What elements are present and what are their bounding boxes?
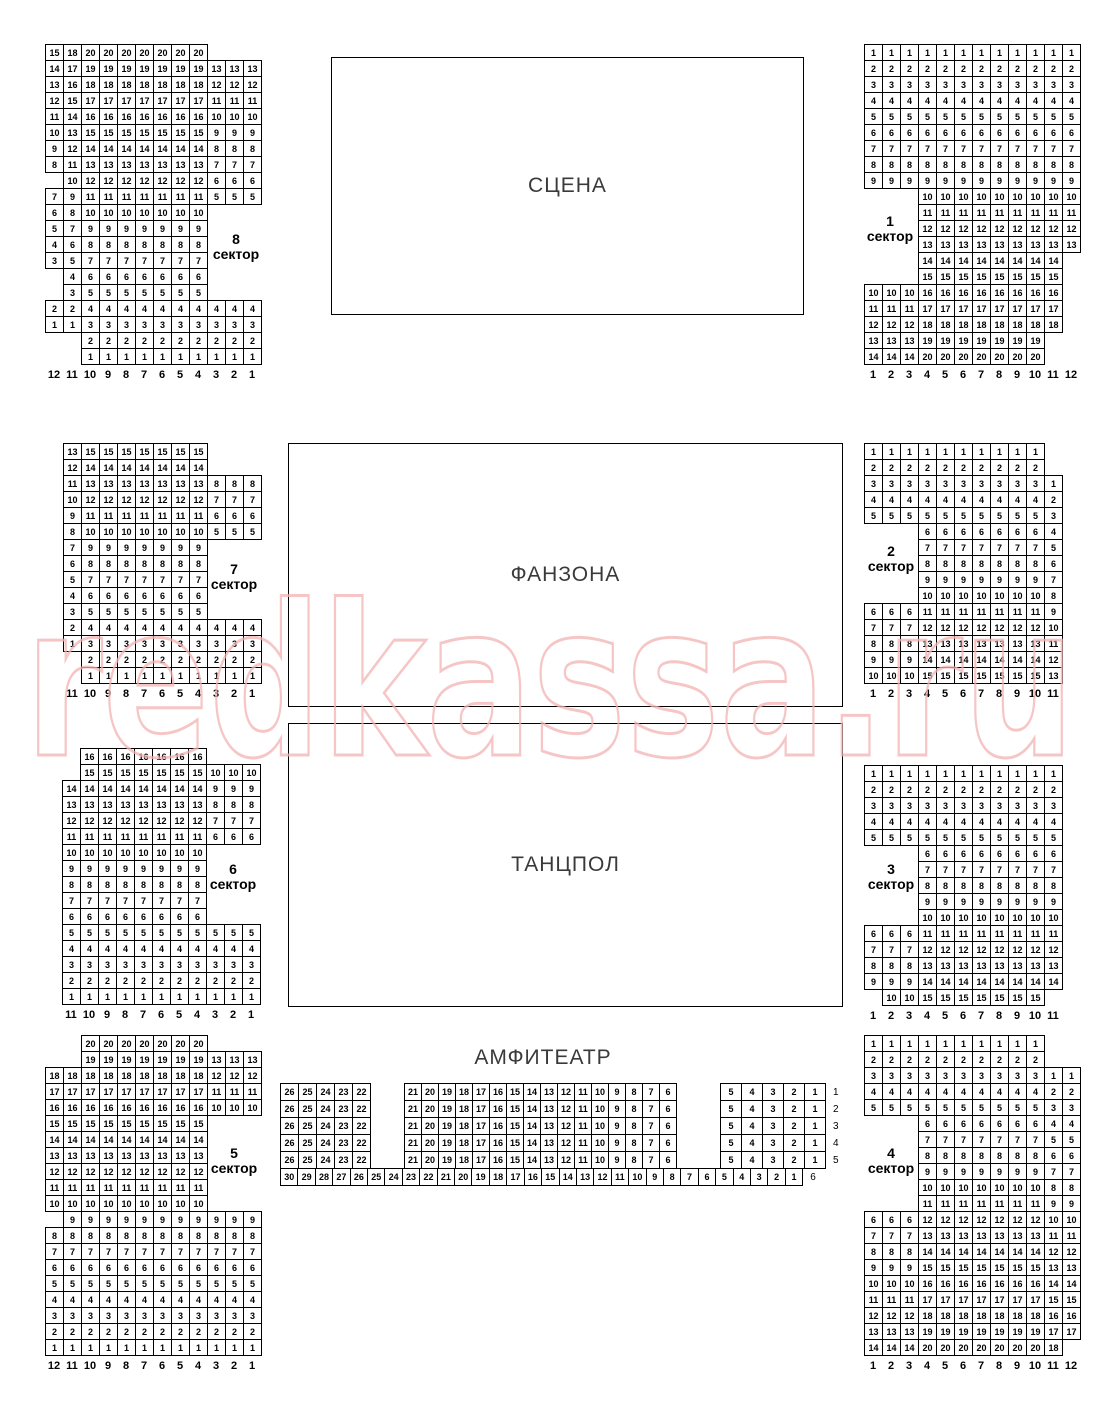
seat-cell[interactable]: 18 [918, 1307, 937, 1324]
seat-cell[interactable]: 1 [1008, 1035, 1027, 1052]
seat-cell[interactable]: 6 [659, 1100, 677, 1118]
seat-cell[interactable]: 7 [1044, 861, 1063, 878]
seat-cell[interactable]: 14 [954, 973, 973, 990]
seat-cell[interactable]: 2 [243, 1323, 262, 1340]
seat-cell[interactable]: 19 [99, 1051, 118, 1068]
seat-cell[interactable]: 5 [936, 507, 955, 524]
seat-cell[interactable]: 7 [864, 941, 883, 958]
seat-cell[interactable]: 10 [900, 1275, 919, 1292]
seat-cell[interactable]: 19 [117, 60, 136, 77]
seat-cell[interactable]: 12 [972, 220, 991, 237]
seat-cell[interactable]: 4 [135, 619, 154, 636]
seat-cell[interactable]: 20 [99, 1035, 118, 1052]
seat-cell[interactable]: 25 [298, 1151, 317, 1169]
seat-cell[interactable]: 5 [63, 252, 82, 269]
seat-cell[interactable]: 14 [882, 348, 901, 365]
seat-cell[interactable]: 1 [243, 348, 262, 365]
seat-cell[interactable]: 2 [972, 1051, 991, 1068]
seat-cell[interactable]: 20 [954, 1339, 973, 1356]
seat-cell[interactable]: 1 [117, 1339, 136, 1356]
seat-cell[interactable]: 9 [81, 220, 100, 237]
seat-cell[interactable]: 1 [954, 443, 973, 460]
seat-cell[interactable]: 6 [189, 1259, 208, 1276]
seat-cell[interactable]: 15 [990, 989, 1009, 1006]
seat-cell[interactable]: 6 [864, 1211, 883, 1228]
seat-cell[interactable]: 8 [864, 1243, 883, 1260]
seat-cell[interactable]: 1 [1044, 44, 1063, 61]
seat-cell[interactable]: 2 [882, 1051, 901, 1068]
seat-cell[interactable]: 10 [990, 1179, 1009, 1196]
seat-cell[interactable]: 13 [882, 332, 901, 349]
seat-cell[interactable]: 8 [135, 555, 154, 572]
seat-cell[interactable]: 3 [117, 1307, 136, 1324]
seat-cell[interactable]: 11 [81, 507, 100, 524]
seat-cell[interactable]: 4 [81, 619, 100, 636]
seat-cell[interactable]: 10 [954, 909, 973, 926]
seat-cell[interactable]: 7 [117, 252, 136, 269]
seat-cell[interactable]: 6 [936, 845, 955, 862]
seat-cell[interactable]: 7 [642, 1134, 660, 1152]
seat-cell[interactable]: 10 [189, 1195, 208, 1212]
seat-cell[interactable]: 5 [864, 108, 883, 125]
seat-cell[interactable]: 2 [81, 651, 100, 668]
seat-cell[interactable]: 24 [316, 1151, 335, 1169]
seat-cell[interactable]: 16 [954, 284, 973, 301]
seat-cell[interactable]: 2 [900, 459, 919, 476]
seat-cell[interactable]: 1 [63, 635, 82, 652]
seat-cell[interactable]: 13 [225, 1051, 244, 1068]
seat-cell[interactable]: 3 [171, 316, 190, 333]
seat-cell[interactable]: 14 [882, 1339, 901, 1356]
seat-cell[interactable]: 13 [540, 1117, 558, 1135]
seat-cell[interactable]: 2 [153, 651, 172, 668]
seat-cell[interactable]: 2 [189, 332, 208, 349]
seat-cell[interactable]: 11 [972, 1195, 991, 1212]
seat-cell[interactable]: 5 [954, 108, 973, 125]
seat-cell[interactable]: 14 [45, 1131, 64, 1148]
seat-cell[interactable]: 4 [741, 1117, 763, 1135]
seat-cell[interactable]: 7 [81, 1243, 100, 1260]
seat-cell[interactable]: 14 [990, 252, 1009, 269]
seat-cell[interactable]: 7 [1044, 1163, 1063, 1180]
seat-cell[interactable]: 15 [990, 1259, 1009, 1276]
seat-cell[interactable]: 14 [188, 780, 207, 797]
seat-cell[interactable]: 10 [954, 587, 973, 604]
seat-cell[interactable]: 11 [990, 204, 1009, 221]
seat-cell[interactable]: 14 [1026, 252, 1045, 269]
seat-cell[interactable]: 5 [170, 924, 189, 941]
seat-cell[interactable]: 9 [63, 188, 82, 205]
seat-cell[interactable]: 12 [1026, 220, 1045, 237]
seat-cell[interactable]: 8 [972, 555, 991, 572]
seat-cell[interactable]: 7 [225, 491, 244, 508]
seat-cell[interactable]: 7 [936, 539, 955, 556]
seat-cell[interactable]: 9 [63, 1211, 82, 1228]
seat-cell[interactable]: 8 [63, 523, 82, 540]
seat-cell[interactable]: 7 [1008, 140, 1027, 157]
seat-cell[interactable]: 12 [62, 812, 81, 829]
seat-cell[interactable]: 6 [882, 1211, 901, 1228]
seat-cell[interactable]: 7 [864, 140, 883, 157]
seat-cell[interactable]: 2 [767, 1168, 785, 1186]
seat-cell[interactable]: 25 [298, 1134, 317, 1152]
seat-cell[interactable]: 16 [489, 1100, 507, 1118]
seat-cell[interactable]: 7 [45, 1243, 64, 1260]
seat-cell[interactable]: 19 [438, 1083, 456, 1101]
seat-cell[interactable]: 2 [882, 60, 901, 77]
seat-cell[interactable]: 13 [1062, 236, 1081, 253]
seat-cell[interactable]: 7 [918, 140, 937, 157]
seat-cell[interactable]: 26 [280, 1100, 299, 1118]
seat-cell[interactable]: 7 [206, 812, 225, 829]
seat-cell[interactable]: 9 [189, 539, 208, 556]
seat-cell[interactable]: 13 [864, 1323, 883, 1340]
seat-cell[interactable]: 8 [99, 236, 118, 253]
seat-cell[interactable]: 12 [117, 172, 136, 189]
seat-cell[interactable]: 16 [936, 284, 955, 301]
seat-cell[interactable]: 12 [557, 1117, 575, 1135]
seat-cell[interactable]: 3 [171, 635, 190, 652]
seat-cell[interactable]: 1 [864, 443, 883, 460]
seat-cell[interactable]: 13 [918, 1227, 937, 1244]
seat-cell[interactable]: 2 [135, 332, 154, 349]
seat-cell[interactable]: 7 [135, 571, 154, 588]
seat-cell[interactable]: 1 [99, 667, 118, 684]
seat-cell[interactable]: 15 [117, 124, 136, 141]
seat-cell[interactable]: 3 [135, 1307, 154, 1324]
seat-cell[interactable]: 11 [1008, 925, 1027, 942]
seat-cell[interactable]: 10 [918, 1179, 937, 1196]
seat-cell[interactable]: 5 [918, 108, 937, 125]
seat-cell[interactable]: 2 [80, 972, 99, 989]
seat-cell[interactable]: 17 [45, 1083, 64, 1100]
seat-cell[interactable]: 12 [1044, 941, 1063, 958]
seat-cell[interactable]: 12 [45, 1163, 64, 1180]
seat-cell[interactable]: 15 [972, 989, 991, 1006]
seat-cell[interactable]: 17 [189, 1083, 208, 1100]
seat-cell[interactable]: 15 [171, 124, 190, 141]
seat-cell[interactable]: 5 [153, 1275, 172, 1292]
seat-cell[interactable]: 3 [1044, 507, 1063, 524]
seat-cell[interactable]: 16 [489, 1083, 507, 1101]
seat-cell[interactable]: 13 [900, 1323, 919, 1340]
seat-cell[interactable]: 9 [864, 973, 883, 990]
seat-cell[interactable]: 3 [990, 475, 1009, 492]
seat-cell[interactable]: 5 [1044, 108, 1063, 125]
seat-cell[interactable]: 11 [99, 507, 118, 524]
seat-cell[interactable]: 3 [242, 956, 261, 973]
seat-cell[interactable]: 18 [1026, 1307, 1045, 1324]
seat-cell[interactable]: 7 [642, 1117, 660, 1135]
seat-cell[interactable]: 17 [63, 1083, 82, 1100]
seat-cell[interactable]: 6 [99, 587, 118, 604]
seat-cell[interactable]: 7 [170, 892, 189, 909]
seat-cell[interactable]: 11 [574, 1134, 592, 1152]
seat-cell[interactable]: 9 [918, 1163, 937, 1180]
seat-cell[interactable]: 5 [918, 829, 937, 846]
seat-cell[interactable]: 12 [1062, 1243, 1081, 1260]
seat-cell[interactable]: 15 [135, 1115, 154, 1132]
seat-cell[interactable]: 4 [171, 1291, 190, 1308]
seat-cell[interactable]: 20 [153, 1035, 172, 1052]
seat-cell[interactable]: 17 [990, 1291, 1009, 1308]
seat-cell[interactable]: 12 [882, 1307, 901, 1324]
seat-cell[interactable]: 5 [1008, 108, 1027, 125]
seat-cell[interactable]: 11 [45, 1179, 64, 1196]
seat-cell[interactable]: 2 [1008, 781, 1027, 798]
seat-cell[interactable]: 9 [608, 1083, 626, 1101]
seat-cell[interactable]: 14 [80, 780, 99, 797]
seat-cell[interactable]: 10 [170, 844, 189, 861]
seat-cell[interactable]: 4 [972, 491, 991, 508]
seat-cell[interactable]: 24 [316, 1100, 335, 1118]
seat-cell[interactable]: 4 [954, 1083, 973, 1100]
seat-cell[interactable]: 17 [990, 300, 1009, 317]
seat-cell[interactable]: 12 [864, 316, 883, 333]
seat-cell[interactable]: 3 [225, 316, 244, 333]
seat-cell[interactable]: 6 [1044, 845, 1063, 862]
seat-cell[interactable]: 12 [63, 459, 82, 476]
seat-cell[interactable]: 20 [454, 1168, 472, 1186]
seat-cell[interactable]: 12 [900, 316, 919, 333]
seat-cell[interactable]: 4 [116, 940, 135, 957]
seat-cell[interactable]: 18 [936, 1307, 955, 1324]
seat-cell[interactable]: 9 [864, 1259, 883, 1276]
seat-cell[interactable]: 13 [576, 1168, 594, 1186]
seat-cell[interactable]: 1 [1008, 765, 1027, 782]
seat-cell[interactable]: 9 [80, 860, 99, 877]
seat-cell[interactable]: 8 [882, 156, 901, 173]
seat-cell[interactable]: 12 [81, 172, 100, 189]
seat-cell[interactable]: 19 [438, 1117, 456, 1135]
seat-cell[interactable]: 14 [99, 459, 118, 476]
seat-cell[interactable]: 10 [1062, 188, 1081, 205]
seat-cell[interactable]: 5 [135, 284, 154, 301]
seat-cell[interactable]: 1 [990, 44, 1009, 61]
seat-cell[interactable]: 11 [574, 1151, 592, 1169]
seat-cell[interactable]: 10 [1026, 1179, 1045, 1196]
seat-cell[interactable]: 8 [936, 877, 955, 894]
seat-cell[interactable]: 6 [882, 603, 901, 620]
seat-cell[interactable]: 2 [243, 332, 262, 349]
seat-cell[interactable]: 21 [404, 1083, 422, 1101]
seat-cell[interactable]: 10 [80, 844, 99, 861]
seat-cell[interactable]: 4 [1044, 92, 1063, 109]
seat-cell[interactable]: 9 [646, 1168, 664, 1186]
seat-cell[interactable]: 18 [63, 44, 82, 61]
seat-cell[interactable]: 10 [81, 204, 100, 221]
seat-cell[interactable]: 13 [936, 957, 955, 974]
seat-cell[interactable]: 6 [900, 925, 919, 942]
seat-cell[interactable]: 3 [81, 1307, 100, 1324]
seat-cell[interactable]: 18 [189, 76, 208, 93]
seat-cell[interactable]: 20 [189, 1035, 208, 1052]
seat-cell[interactable]: 5 [225, 1275, 244, 1292]
seat-cell[interactable]: 7 [116, 892, 135, 909]
seat-cell[interactable]: 15 [506, 1117, 524, 1135]
seat-cell[interactable]: 13 [171, 475, 190, 492]
seat-cell[interactable]: 3 [762, 1134, 784, 1152]
seat-cell[interactable]: 1 [882, 44, 901, 61]
seat-cell[interactable]: 2 [918, 459, 937, 476]
seat-cell[interactable]: 6 [972, 845, 991, 862]
seat-cell[interactable]: 8 [918, 156, 937, 173]
seat-cell[interactable]: 8 [117, 555, 136, 572]
seat-cell[interactable]: 2 [918, 60, 937, 77]
seat-cell[interactable]: 14 [1008, 973, 1027, 990]
seat-cell[interactable]: 16 [918, 284, 937, 301]
seat-cell[interactable]: 4 [954, 491, 973, 508]
seat-cell[interactable]: 3 [1062, 1099, 1081, 1116]
seat-cell[interactable]: 5 [117, 603, 136, 620]
seat-cell[interactable]: 2 [900, 60, 919, 77]
seat-cell[interactable]: 15 [135, 443, 154, 460]
seat-cell[interactable]: 20 [990, 348, 1009, 365]
seat-cell[interactable]: 10 [591, 1134, 609, 1152]
seat-cell[interactable]: 3 [918, 797, 937, 814]
seat-cell[interactable]: 13 [918, 236, 937, 253]
seat-cell[interactable]: 9 [171, 220, 190, 237]
seat-cell[interactable]: 9 [189, 1211, 208, 1228]
seat-cell[interactable]: 3 [243, 635, 262, 652]
seat-cell[interactable]: 8 [1062, 156, 1081, 173]
seat-cell[interactable]: 14 [990, 1243, 1009, 1260]
seat-cell[interactable]: 18 [81, 76, 100, 93]
seat-cell[interactable]: 8 [625, 1134, 643, 1152]
seat-cell[interactable]: 5 [1062, 1131, 1081, 1148]
seat-cell[interactable]: 8 [63, 1227, 82, 1244]
seat-cell[interactable]: 2 [62, 972, 81, 989]
seat-cell[interactable]: 2 [225, 651, 244, 668]
seat-cell[interactable]: 9 [900, 651, 919, 668]
seat-cell[interactable]: 16 [134, 748, 153, 765]
seat-cell[interactable]: 3 [62, 956, 81, 973]
seat-cell[interactable]: 11 [611, 1168, 629, 1186]
seat-cell[interactable]: 16 [936, 1275, 955, 1292]
seat-cell[interactable]: 14 [81, 1131, 100, 1148]
seat-cell[interactable]: 5 [117, 284, 136, 301]
seat-cell[interactable]: 7 [900, 140, 919, 157]
seat-cell[interactable]: 15 [506, 1134, 524, 1152]
seat-cell[interactable]: 3 [171, 1307, 190, 1324]
seat-cell[interactable]: 7 [900, 1227, 919, 1244]
seat-cell[interactable]: 17 [117, 1083, 136, 1100]
seat-cell[interactable]: 3 [189, 316, 208, 333]
seat-cell[interactable]: 10 [1008, 587, 1027, 604]
seat-cell[interactable]: 5 [80, 924, 99, 941]
seat-cell[interactable]: 5 [242, 924, 261, 941]
seat-cell[interactable]: 17 [918, 1291, 937, 1308]
seat-cell[interactable]: 7 [189, 1243, 208, 1260]
seat-cell[interactable]: 4 [1044, 1115, 1063, 1132]
seat-cell[interactable]: 11 [918, 925, 937, 942]
seat-cell[interactable]: 1 [207, 1339, 226, 1356]
seat-cell[interactable]: 10 [936, 587, 955, 604]
seat-cell[interactable]: 10 [1044, 188, 1063, 205]
seat-cell[interactable]: 5 [936, 108, 955, 125]
seat-cell[interactable]: 11 [936, 603, 955, 620]
seat-cell[interactable]: 5 [117, 1275, 136, 1292]
seat-cell[interactable]: 1 [225, 667, 244, 684]
seat-cell[interactable]: 6 [659, 1134, 677, 1152]
seat-cell[interactable]: 2 [954, 1051, 973, 1068]
seat-cell[interactable]: 2 [990, 459, 1009, 476]
seat-cell[interactable]: 2 [1026, 459, 1045, 476]
seat-cell[interactable]: 3 [1026, 76, 1045, 93]
seat-cell[interactable]: 20 [918, 1339, 937, 1356]
seat-cell[interactable]: 12 [188, 812, 207, 829]
seat-cell[interactable]: 11 [1008, 1195, 1027, 1212]
seat-cell[interactable]: 2 [135, 1323, 154, 1340]
seat-cell[interactable]: 9 [1062, 1195, 1081, 1212]
seat-cell[interactable]: 5 [864, 829, 883, 846]
seat-cell[interactable]: 13 [954, 635, 973, 652]
seat-cell[interactable]: 6 [1062, 1147, 1081, 1164]
seat-cell[interactable]: 9 [918, 893, 937, 910]
seat-cell[interactable]: 14 [864, 348, 883, 365]
seat-cell[interactable]: 11 [1026, 925, 1045, 942]
stage-zone[interactable]: СЦЕНА [331, 57, 804, 315]
seat-cell[interactable]: 6 [900, 603, 919, 620]
seat-cell[interactable]: 11 [189, 507, 208, 524]
seat-cell[interactable]: 10 [207, 108, 226, 125]
seat-cell[interactable]: 12 [153, 491, 172, 508]
seat-cell[interactable]: 17 [189, 92, 208, 109]
seat-cell[interactable]: 14 [972, 252, 991, 269]
seat-cell[interactable]: 3 [135, 316, 154, 333]
seat-cell[interactable]: 19 [438, 1151, 456, 1169]
seat-cell[interactable]: 12 [972, 941, 991, 958]
seat-cell[interactable]: 7 [1008, 539, 1027, 556]
seat-cell[interactable]: 7 [900, 619, 919, 636]
seat-cell[interactable]: 7 [954, 539, 973, 556]
seat-cell[interactable]: 11 [243, 92, 262, 109]
seat-cell[interactable]: 15 [81, 124, 100, 141]
seat-cell[interactable]: 9 [972, 172, 991, 189]
seat-cell[interactable]: 11 [170, 828, 189, 845]
seat-cell[interactable]: 6 [135, 1259, 154, 1276]
seat-cell[interactable]: 4 [990, 92, 1009, 109]
seat-cell[interactable]: 4 [1044, 523, 1063, 540]
seat-cell[interactable]: 17 [153, 92, 172, 109]
seat-cell[interactable]: 4 [207, 1291, 226, 1308]
seat-cell[interactable]: 15 [45, 44, 64, 61]
seat-cell[interactable]: 13 [1044, 957, 1063, 974]
seat-cell[interactable]: 15 [1008, 667, 1027, 684]
seat-cell[interactable]: 12 [936, 941, 955, 958]
seat-cell[interactable]: 3 [80, 956, 99, 973]
seat-cell[interactable]: 3 [954, 797, 973, 814]
seat-cell[interactable]: 11 [1044, 925, 1063, 942]
seat-cell[interactable]: 13 [81, 156, 100, 173]
seat-cell[interactable]: 3 [936, 475, 955, 492]
seat-cell[interactable]: 16 [972, 284, 991, 301]
seat-cell[interactable]: 5 [990, 507, 1009, 524]
seat-cell[interactable]: 19 [972, 332, 991, 349]
seat-cell[interactable]: 15 [990, 268, 1009, 285]
seat-cell[interactable]: 5 [1026, 1099, 1045, 1116]
seat-cell[interactable]: 3 [882, 76, 901, 93]
seat-cell[interactable]: 8 [900, 635, 919, 652]
seat-cell[interactable]: 9 [882, 172, 901, 189]
seat-cell[interactable]: 4 [243, 619, 262, 636]
seat-cell[interactable]: 17 [954, 300, 973, 317]
seat-cell[interactable]: 4 [882, 92, 901, 109]
seat-cell[interactable]: 9 [918, 172, 937, 189]
seat-cell[interactable]: 10 [117, 1195, 136, 1212]
seat-cell[interactable]: 20 [171, 1035, 190, 1052]
seat-cell[interactable]: 8 [936, 555, 955, 572]
